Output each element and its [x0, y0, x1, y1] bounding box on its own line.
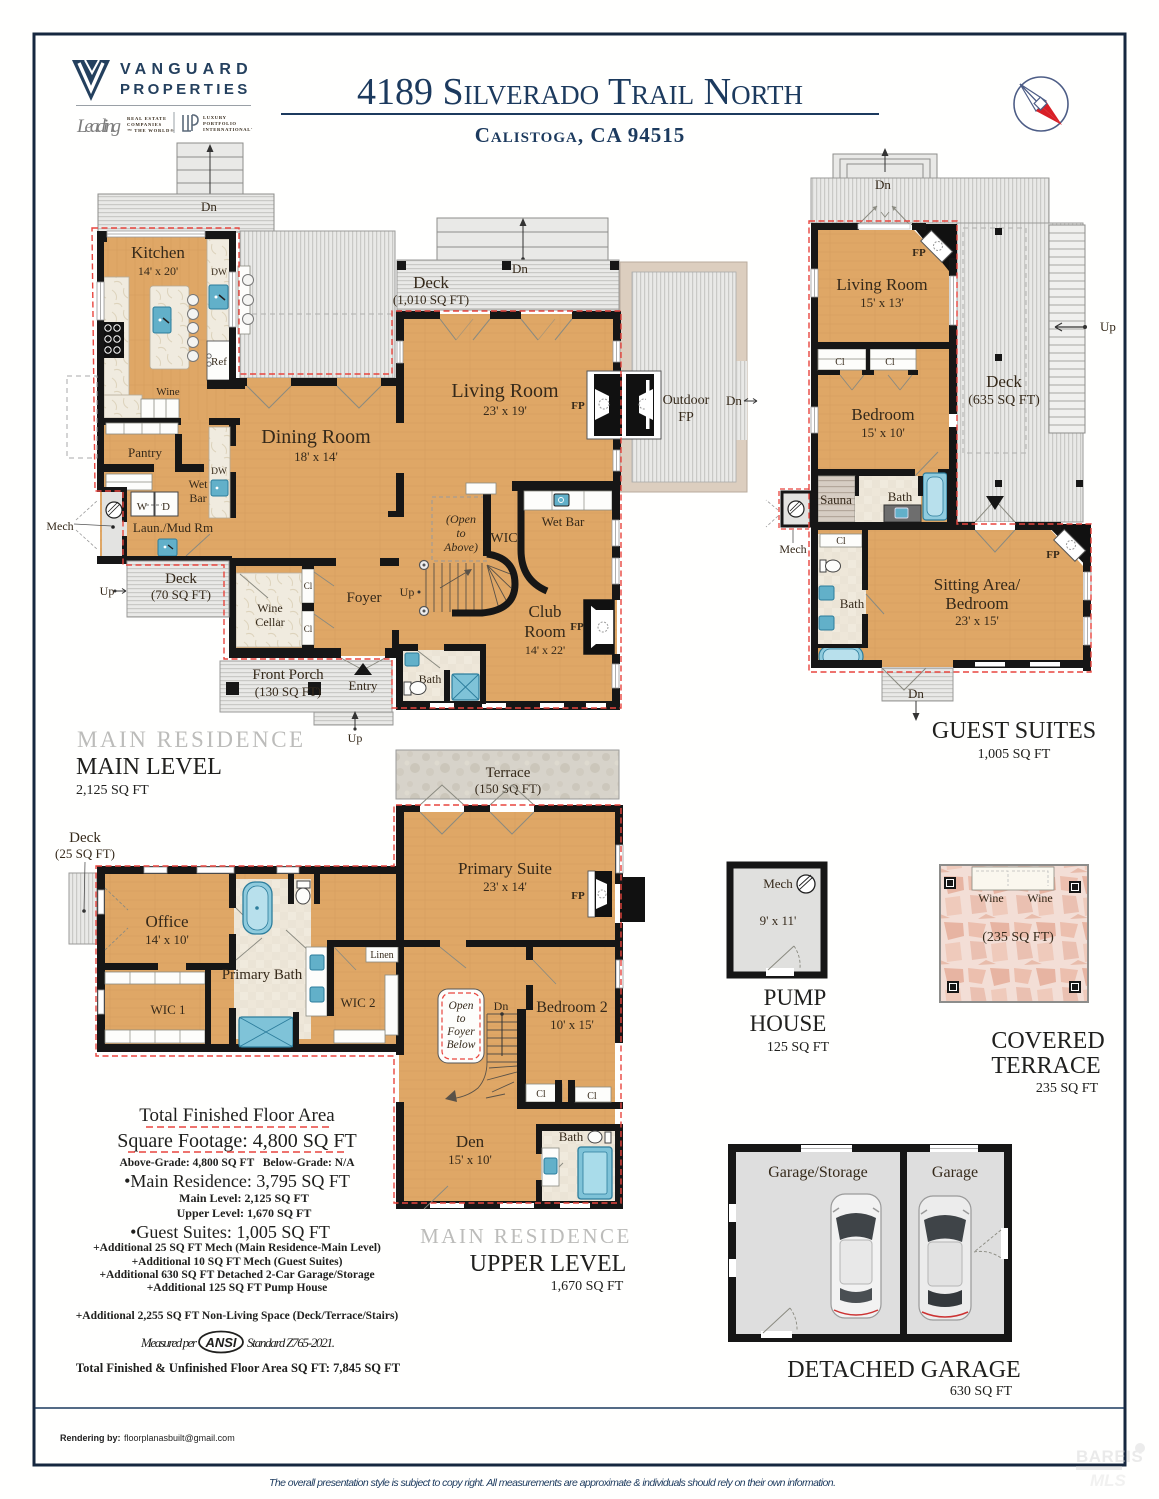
svg-text:15' x 10': 15' x 10' — [861, 425, 905, 440]
svg-text:Leading: Leading — [76, 116, 121, 137]
svg-text:Sitting Area/: Sitting Area/ — [934, 575, 1021, 594]
svg-text:Ref: Ref — [211, 356, 227, 368]
svg-text:Above-Grade: 4,800 SQ FT Bel: Above-Grade: 4,800 SQ FT Below-Grade: N/… — [119, 1157, 355, 1169]
svg-text:Below: Below — [447, 1039, 476, 1051]
svg-text:MLS: MLS — [1090, 1471, 1127, 1490]
svg-text:(130 SQ FT): (130 SQ FT) — [255, 684, 321, 699]
svg-text:2,125 SQ FT: 2,125 SQ FT — [76, 783, 149, 798]
svg-text:23' x 19': 23' x 19' — [483, 403, 527, 418]
svg-text:Foyer: Foyer — [347, 590, 382, 606]
svg-text:Living Room: Living Room — [836, 275, 927, 294]
svg-text:Entry: Entry — [349, 678, 378, 693]
svg-text:Dn: Dn — [726, 393, 742, 408]
svg-text:Garage/Storage: Garage/Storage — [768, 1164, 868, 1181]
svg-text:Dining Room: Dining Room — [261, 426, 371, 448]
svg-text:Wine: Wine — [978, 891, 1004, 905]
svg-text:Upper Level: 1,670 SQ FT: Upper Level: 1,670 SQ FT — [177, 1206, 312, 1220]
svg-text:Garage: Garage — [932, 1164, 978, 1181]
svg-text:PORTFOLIO: PORTFOLIO — [203, 121, 237, 126]
svg-text:ANSI: ANSI — [204, 1335, 236, 1350]
svg-text:Above): Above) — [443, 540, 478, 554]
svg-text:1,005 SQ FT: 1,005 SQ FT — [978, 747, 1051, 762]
svg-text:Up: Up — [400, 585, 415, 599]
svg-text:Dn: Dn — [908, 686, 924, 701]
svg-text:The overall presentation style: The overall presentation style is subjec… — [269, 1477, 836, 1489]
svg-text:Dn: Dn — [875, 177, 891, 192]
svg-text:(25 SQ FT): (25 SQ FT) — [55, 846, 115, 861]
svg-text:MAIN LEVEL: MAIN LEVEL — [76, 754, 222, 780]
svg-text:+Additional 2,255 SQ FT Non-L: +Additional 2,255 SQ FT Non-Living Space… — [76, 1310, 399, 1322]
svg-text:Mech: Mech — [46, 519, 73, 533]
svg-text:Terrace: Terrace — [486, 765, 531, 781]
svg-text:™ THE WORLD®: ™ THE WORLD® — [127, 128, 174, 133]
svg-text:630 SQ FT: 630 SQ FT — [950, 1384, 1013, 1399]
svg-text:Bath: Bath — [888, 489, 913, 504]
svg-text:Linen: Linen — [370, 950, 393, 961]
svg-text:FP: FP — [571, 890, 585, 902]
svg-text:WIC 1: WIC 1 — [150, 1002, 185, 1017]
svg-text:Bath: Bath — [559, 1129, 584, 1144]
svg-text:Calistoga, CA 94515: Calistoga, CA 94515 — [475, 123, 686, 147]
svg-text:(Open: (Open — [446, 512, 476, 526]
svg-text:Bedroom 2: Bedroom 2 — [536, 999, 608, 1016]
svg-text:+Additional 25 SQ FT Mech (Mai: +Additional 25 SQ FT Mech (Main Residenc… — [93, 1242, 381, 1254]
svg-text:UPPER LEVEL: UPPER LEVEL — [470, 1251, 627, 1277]
svg-text:Measured per: Measured per — [140, 1335, 198, 1350]
svg-text:Cl: Cl — [304, 624, 313, 634]
svg-text:WIC 2: WIC 2 — [340, 995, 375, 1010]
svg-text:Bar: Bar — [189, 491, 206, 505]
svg-text:Cl: Cl — [536, 1089, 546, 1100]
svg-text:Mech: Mech — [763, 876, 793, 891]
svg-text:Wine: Wine — [1027, 891, 1053, 905]
svg-text:Room: Room — [524, 622, 566, 641]
svg-text:W: W — [137, 501, 148, 513]
svg-text:Den: Den — [456, 1132, 485, 1151]
svg-text:Pantry: Pantry — [128, 445, 162, 460]
svg-text:Bedroom: Bedroom — [945, 594, 1008, 613]
svg-text:14' x 10': 14' x 10' — [145, 932, 189, 947]
svg-text:4189 Silverado Trail North: 4189 Silverado Trail North — [357, 71, 803, 113]
svg-text:VANGUARD: VANGUARD — [120, 61, 253, 78]
svg-text:FP: FP — [678, 410, 694, 425]
svg-text:Front Porch: Front Porch — [252, 667, 324, 683]
svg-text:Dn: Dn — [512, 261, 528, 276]
svg-text:LUXURY: LUXURY — [203, 115, 227, 120]
svg-text:•Main Residence: 3,795 SQ FT: •Main Residence: 3,795 SQ FT — [124, 1171, 350, 1191]
svg-text:Rendering by:: Rendering by: — [60, 1433, 121, 1443]
svg-text:FP: FP — [570, 621, 584, 633]
svg-text:23' x 15': 23' x 15' — [955, 613, 999, 628]
svg-text:Primary Bath: Primary Bath — [222, 967, 303, 983]
svg-text:Cellar: Cellar — [255, 615, 284, 629]
svg-text:Cl: Cl — [304, 581, 313, 591]
svg-text:+Additional 630 SQ FT Detached: +Additional 630 SQ FT Detached 2-Car Gar… — [99, 1269, 374, 1281]
svg-text:Club: Club — [528, 602, 561, 621]
svg-text:DW: DW — [211, 467, 227, 477]
svg-text:Foyer: Foyer — [446, 1026, 475, 1038]
svg-text:Cl: Cl — [836, 536, 846, 547]
svg-text:Cl: Cl — [835, 357, 845, 368]
svg-text:Primary Suite: Primary Suite — [458, 859, 552, 878]
svg-text:Dn: Dn — [201, 199, 217, 214]
svg-text:Bath: Bath — [840, 596, 865, 611]
svg-text:Wine: Wine — [156, 386, 179, 398]
svg-text:•Guest Suites: 1,005 SQ FT: •Guest Suites: 1,005 SQ FT — [130, 1222, 330, 1242]
svg-text:Laun./Mud Rm: Laun./Mud Rm — [133, 520, 213, 535]
svg-text:Sauna: Sauna — [820, 492, 852, 507]
svg-text:+Additional 125 SQ FT Pump Hou: +Additional 125 SQ FT Pump House — [147, 1282, 327, 1294]
svg-text:15' x 13': 15' x 13' — [860, 295, 904, 310]
svg-text:+Additional 10 SQ FT Mech (Gue: +Additional 10 SQ FT Mech (Guest Suites) — [132, 1256, 343, 1268]
svg-text:23' x 14': 23' x 14' — [483, 879, 527, 894]
svg-text:Living Room: Living Room — [451, 380, 559, 402]
svg-text:PROPERTIES: PROPERTIES — [120, 81, 251, 98]
svg-text:COMPANIES: COMPANIES — [127, 122, 162, 127]
svg-text:HOUSE: HOUSE — [750, 1011, 827, 1036]
svg-text:(635 SQ FT): (635 SQ FT) — [968, 393, 1040, 408]
svg-text:Deck: Deck — [69, 830, 101, 846]
svg-text:Up: Up — [1100, 319, 1116, 334]
svg-text:to: to — [456, 526, 465, 540]
svg-text:Open: Open — [449, 1000, 474, 1012]
svg-text:COVERED: COVERED — [991, 1028, 1104, 1054]
svg-text:Wet: Wet — [188, 477, 208, 491]
svg-text:FP: FP — [1046, 549, 1060, 561]
svg-text:TERRACE: TERRACE — [991, 1053, 1100, 1079]
svg-text:MAIN RESIDENCE: MAIN RESIDENCE — [420, 1224, 632, 1248]
svg-text:WIC: WIC — [490, 531, 517, 546]
svg-text:125 SQ FT: 125 SQ FT — [767, 1040, 830, 1055]
svg-text:1,670 SQ FT: 1,670 SQ FT — [551, 1279, 624, 1294]
svg-text:Total Finished & Unfinished Fl: Total Finished & Unfinished Floor Area S… — [76, 1361, 401, 1375]
svg-text:Total Finished Floor Area: Total Finished Floor Area — [139, 1105, 335, 1126]
svg-text:to: to — [457, 1013, 466, 1025]
svg-text:Wine: Wine — [257, 601, 283, 615]
svg-text:Bedroom: Bedroom — [851, 405, 914, 424]
svg-text:Kitchen: Kitchen — [131, 243, 185, 262]
svg-text:Square Footage: 4,800 SQ FT: Square Footage: 4,800 SQ FT — [117, 1130, 356, 1152]
svg-text:floorplanasbuilt@gmail.com: floorplanasbuilt@gmail.com — [124, 1433, 235, 1443]
svg-text:18' x 14': 18' x 14' — [294, 449, 338, 464]
svg-text:GUEST SUITES: GUEST SUITES — [932, 718, 1096, 744]
svg-text:(1,010 SQ FT): (1,010 SQ FT) — [393, 292, 469, 307]
svg-text:Cl: Cl — [587, 1091, 597, 1102]
svg-text:DW: DW — [211, 268, 227, 278]
svg-text:9' x 11': 9' x 11' — [760, 913, 797, 928]
svg-text:PUMP: PUMP — [764, 985, 827, 1010]
svg-text:(70 SQ FT): (70 SQ FT) — [151, 587, 211, 602]
svg-text:15' x 10': 15' x 10' — [448, 1152, 492, 1167]
svg-text:Mech: Mech — [779, 542, 806, 556]
svg-text:235 SQ FT: 235 SQ FT — [1036, 1081, 1099, 1096]
svg-text:BAREIS: BAREIS — [1076, 1447, 1143, 1466]
svg-text:14' x 20': 14' x 20' — [138, 264, 178, 278]
svg-text:Dn: Dn — [494, 999, 509, 1013]
svg-text:14' x 22': 14' x 22' — [525, 643, 565, 657]
svg-text:FP: FP — [571, 400, 585, 412]
svg-text:Main Level: 2,125 SQ FT: Main Level: 2,125 SQ FT — [179, 1191, 309, 1205]
svg-text:Deck: Deck — [413, 273, 449, 292]
svg-text:10' x 15': 10' x 15' — [550, 1017, 594, 1032]
svg-text:D: D — [162, 501, 170, 513]
svg-text:Cl: Cl — [885, 357, 895, 368]
svg-text:Outdoor: Outdoor — [663, 393, 710, 408]
svg-text:Office: Office — [145, 912, 188, 931]
svg-text:FP: FP — [912, 247, 926, 259]
svg-text:Up: Up — [348, 731, 363, 745]
svg-text:Standard Z765-2021.: Standard Z765-2021. — [247, 1335, 335, 1350]
svg-text:REAL ESTATE: REAL ESTATE — [127, 116, 167, 121]
svg-text:Deck: Deck — [986, 372, 1022, 391]
svg-text:Wet Bar: Wet Bar — [542, 514, 585, 529]
svg-text:(235 SQ FT): (235 SQ FT) — [982, 930, 1054, 945]
svg-text:DETACHED GARAGE: DETACHED GARAGE — [787, 1357, 1020, 1383]
svg-text:MAIN RESIDENCE: MAIN RESIDENCE — [77, 727, 306, 752]
svg-text:INTERNATIONAL′: INTERNATIONAL′ — [203, 127, 253, 132]
svg-text:Deck: Deck — [165, 571, 197, 587]
svg-text:Up: Up — [100, 584, 115, 598]
